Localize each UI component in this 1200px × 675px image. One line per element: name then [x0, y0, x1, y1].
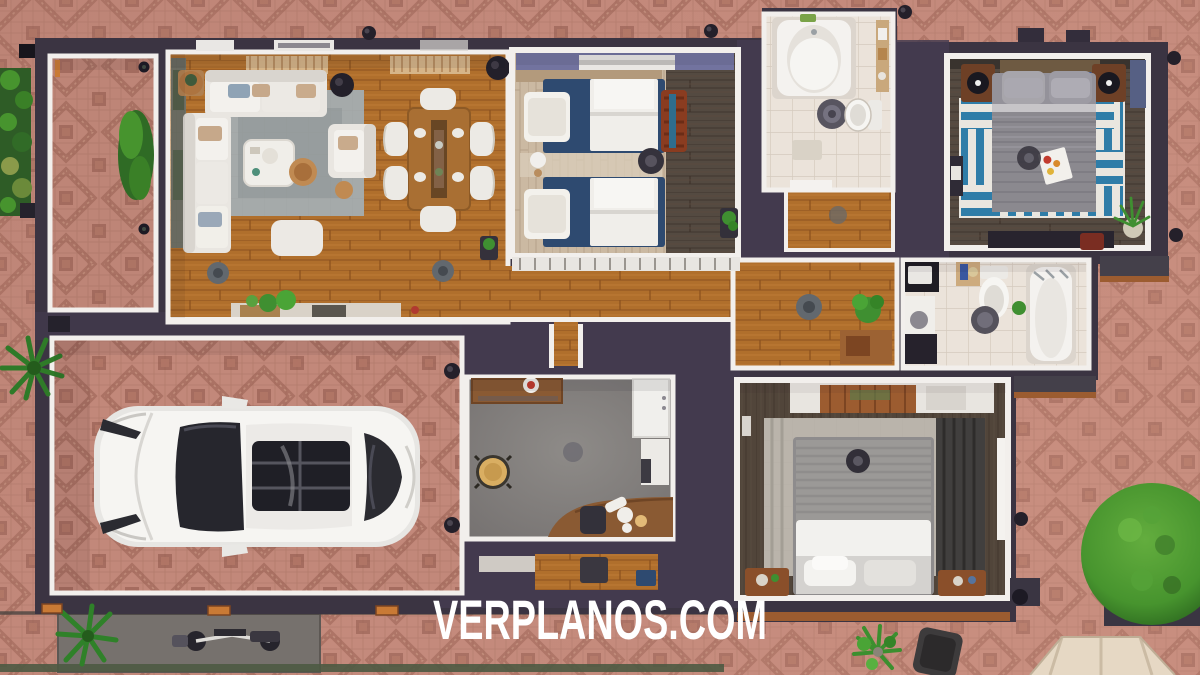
svg-text:VERPLANOS.COM: VERPLANOS.COM — [433, 589, 767, 651]
